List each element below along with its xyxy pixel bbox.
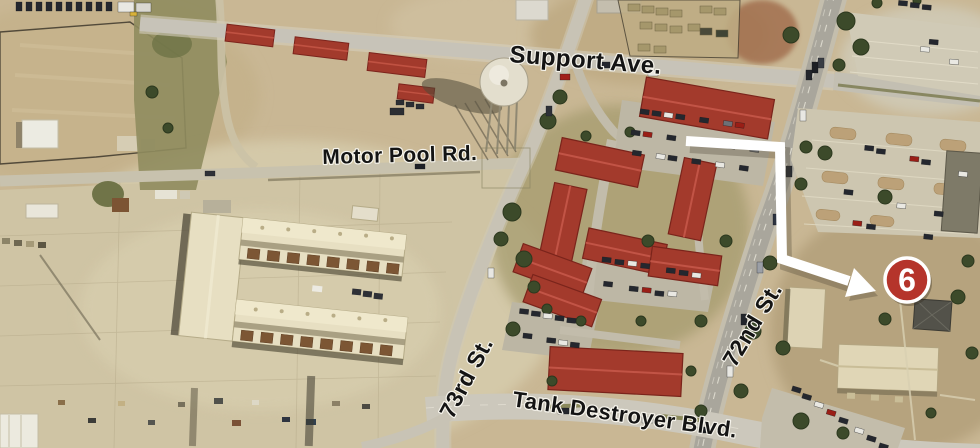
white-building	[22, 120, 58, 148]
long-tan-building	[837, 344, 939, 403]
marker-number: 6	[898, 262, 916, 298]
screenshot-root: Support Ave. Motor Pool Rd. 73rd St. 72n…	[0, 0, 980, 448]
shed	[117, 136, 139, 151]
gray-shed	[203, 200, 231, 213]
street-label-motor-pool-rd: Motor Pool Rd.	[322, 142, 477, 169]
aerial-map: Support Ave. Motor Pool Rd. 73rd St. 72n…	[0, 0, 980, 448]
white-shed	[351, 206, 378, 222]
corner-building	[0, 414, 38, 448]
